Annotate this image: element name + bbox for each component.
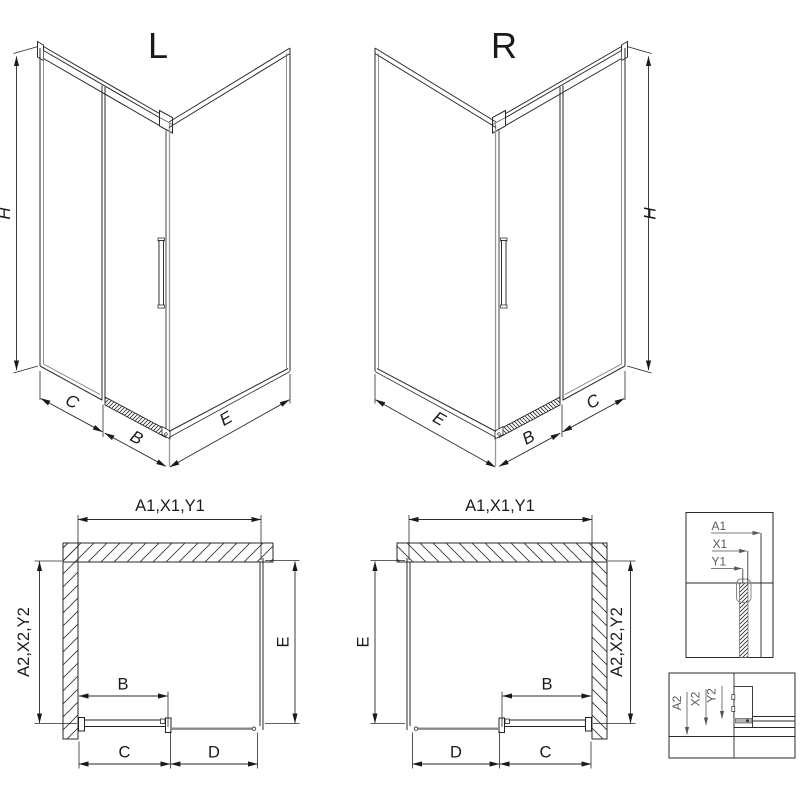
plan-left-b-label: B xyxy=(117,676,128,694)
floor-profile-gasket xyxy=(736,719,753,724)
shower-enclosure-drawing: L H C B E R H E B C A1,X1,Y1 A2,X2,Y2 E … xyxy=(0,0,800,800)
wall-profile-hatched xyxy=(740,583,749,658)
detail-label-x2: X2 xyxy=(689,691,703,706)
detail-label-y1: Y1 xyxy=(712,555,727,569)
plan-right-e-label: E xyxy=(355,636,373,647)
plan-right-b-label: B xyxy=(541,676,552,694)
plan-left-d-label: D xyxy=(208,744,220,762)
detail-label-a2: A2 xyxy=(670,695,684,710)
plan-right-depth-label: A2,X2,Y2 xyxy=(608,607,626,677)
plan-left-e-label: E xyxy=(275,636,293,647)
plan-left-depth-label: A2,X2,Y2 xyxy=(15,607,33,677)
dim-label-height-right: H xyxy=(641,207,660,220)
dim-label-height-left: H xyxy=(0,207,14,220)
plan-right-d-label: D xyxy=(450,744,462,762)
variant-label-left: L xyxy=(148,25,168,66)
profile-screw xyxy=(746,719,749,722)
plan-right-c-label: C xyxy=(540,744,552,762)
plan-right-width-label: A1,X1,Y1 xyxy=(465,497,535,515)
detail-label-x1: X1 xyxy=(713,537,728,551)
detail-label-y2: Y2 xyxy=(705,688,719,703)
detail-label-a1: A1 xyxy=(712,519,727,533)
variant-label-right: R xyxy=(491,25,517,66)
plan-left-c-label: C xyxy=(119,744,131,762)
technical-drawing-sheet: L H C B E R H E B C A1,X1,Y1 A2,X2,Y2 E … xyxy=(0,0,800,800)
plan-left-width-label: A1,X1,Y1 xyxy=(135,497,205,515)
